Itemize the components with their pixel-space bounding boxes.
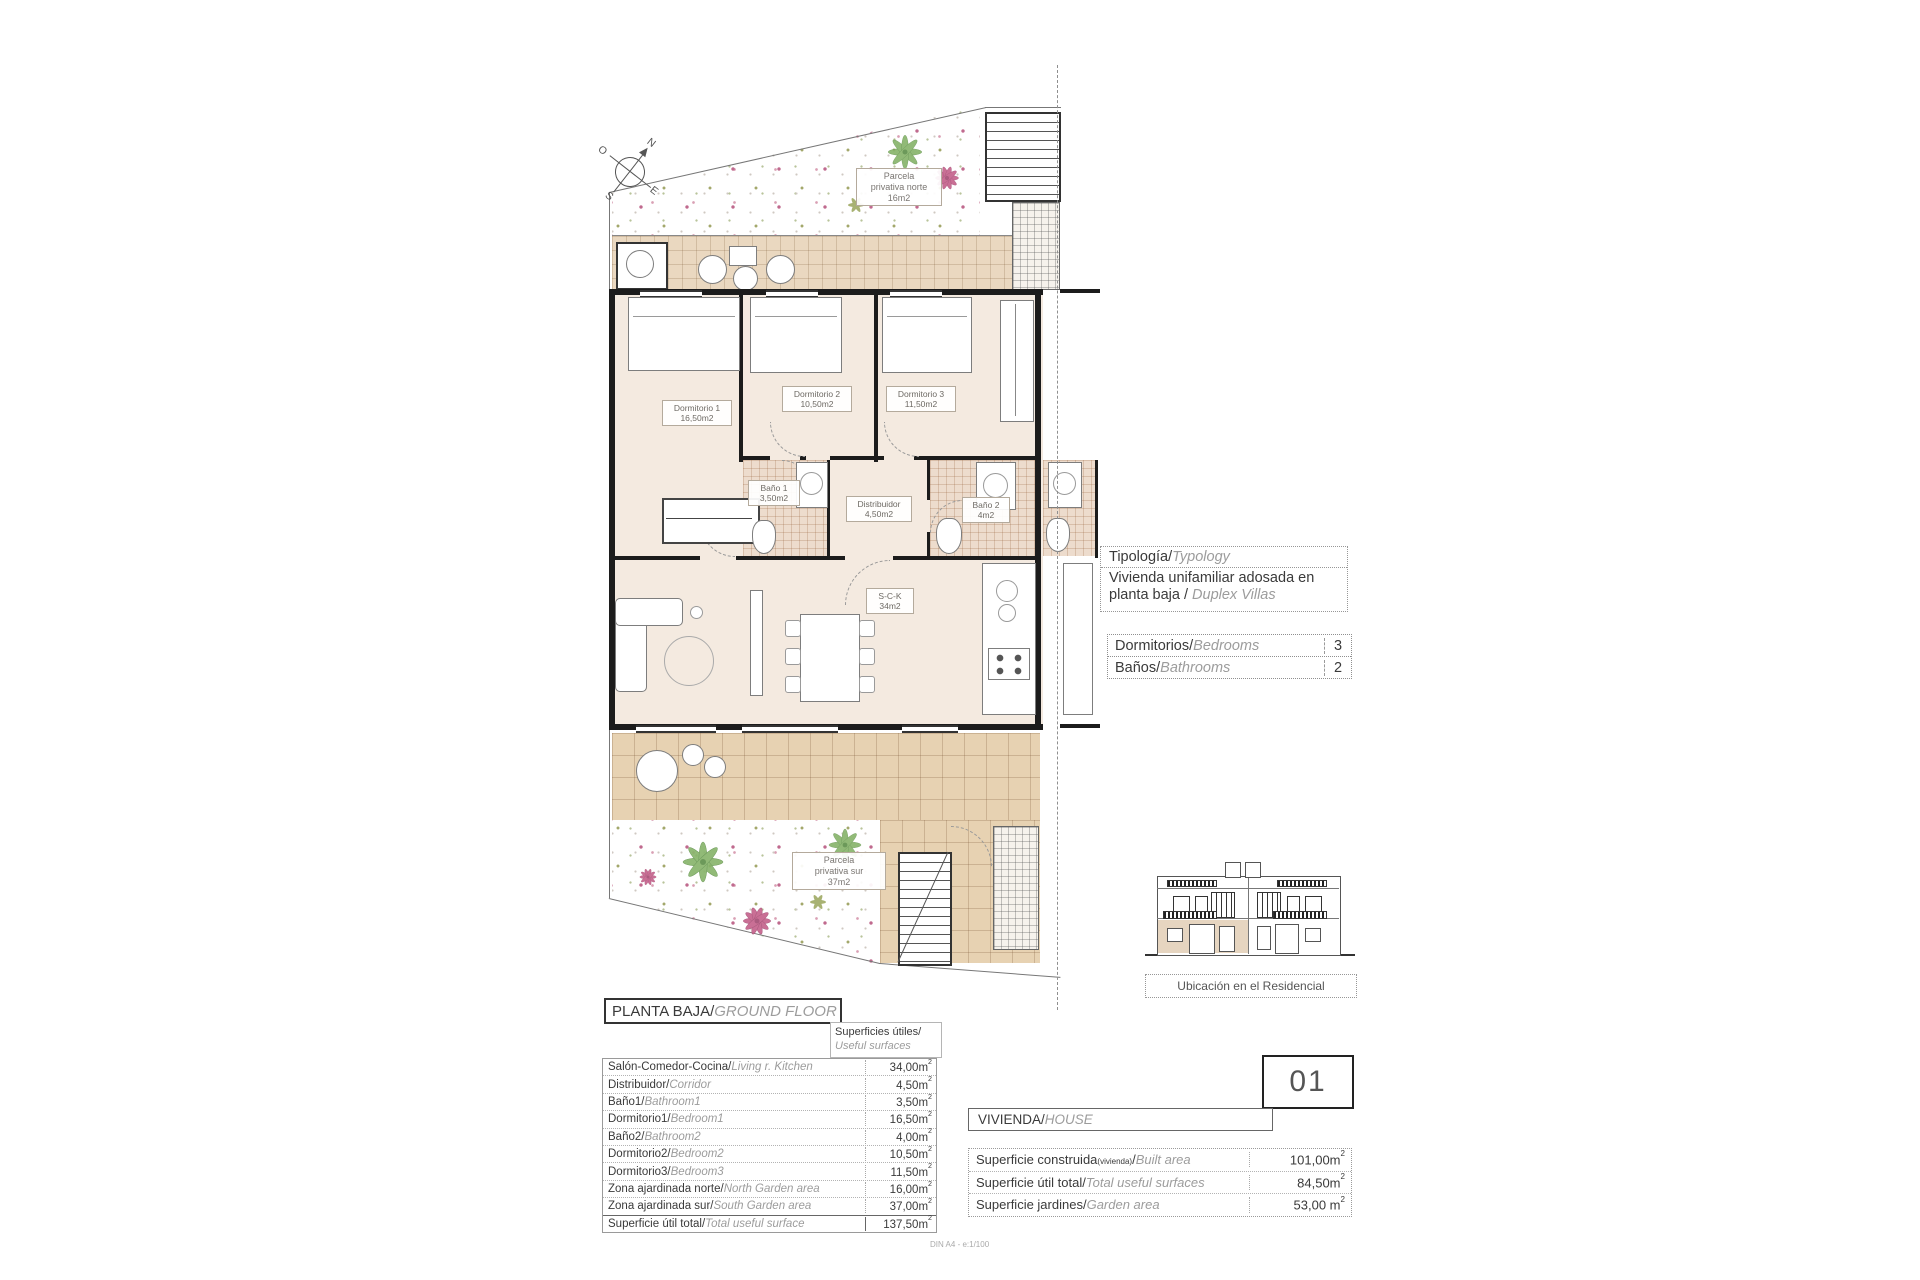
wall-mirror-top [1060, 289, 1100, 293]
house-surface-label-en: Garden area [1087, 1197, 1160, 1212]
staircase-north [985, 112, 1061, 202]
staircase-south [898, 852, 952, 966]
surface-label-es: Dormitorio1/ [608, 1113, 671, 1125]
door-gap-d3 [884, 456, 914, 460]
bed-2 [750, 297, 842, 373]
surface-label-en: North Garden area [724, 1183, 820, 1195]
chair-3 [785, 676, 801, 693]
surface-row: Dormitorio3/Bedroom3 11,50m2 [603, 1162, 936, 1179]
elevation-stair-tower-2 [1245, 862, 1261, 878]
house-label-en: HOUSE [1045, 1112, 1093, 1127]
floor-title-box: PLANTA BAJA/GROUND FLOOR [604, 998, 842, 1024]
house-surface-label-es: Superficie jardines [976, 1197, 1083, 1212]
parcela-line: 16m2 [860, 193, 938, 204]
garden-chair-1 [682, 744, 704, 766]
rug [664, 636, 714, 686]
typology-header: Tipología/Typology [1101, 547, 1347, 568]
label-dormitorio2: Dormitorio 2 10,50m2 [782, 386, 852, 412]
surface-row: Zona ajardinada sur/South Garden area 37… [603, 1197, 936, 1214]
surface-value: 10,50m2 [865, 1147, 936, 1161]
counts-label-en: Bathrooms [1160, 660, 1230, 676]
surface-row: Distribuidor/Corridor 4,50m2 [603, 1075, 936, 1092]
surface-label-en: Total useful surface [705, 1218, 804, 1230]
house-label-bar: VIVIENDA/HOUSE [968, 1108, 1273, 1131]
room-name: Dormitorio 3 [890, 389, 952, 399]
surface-label-en: Living r. Kitchen [731, 1061, 812, 1073]
surface-label-es: Baño1/ [608, 1096, 644, 1108]
surface-value: 37,00m2 [865, 1199, 936, 1213]
parcela-line: 37m2 [796, 877, 882, 888]
label-parcela-sur: Parcela privativa sur 37m2 [792, 852, 886, 890]
window-kitchen [902, 725, 958, 733]
room-area: 34m2 [870, 601, 910, 611]
terrace-table [729, 246, 757, 266]
room-area: 10,50m2 [786, 399, 848, 409]
label-dormitorio3: Dormitorio 3 11,50m2 [886, 386, 956, 412]
elevation-door-g2 [1219, 926, 1235, 952]
room-area: 3,50m2 [752, 493, 796, 503]
room-name: Distribuidor [850, 499, 908, 509]
room-area: 4,50m2 [850, 509, 908, 519]
mirror-counter [1063, 563, 1093, 715]
useful-surfaces-table: Salón-Comedor-Cocina/Living r. Kitchen 3… [602, 1058, 937, 1233]
surface-row: Salón-Comedor-Cocina/Living r. Kitchen 3… [603, 1059, 936, 1075]
garden-chair-2 [704, 756, 726, 778]
surface-label-en: Bedroom1 [671, 1113, 724, 1125]
surface-label-es: Salón-Comedor-Cocina/ [608, 1061, 731, 1073]
room-name: Baño 2 [966, 500, 1006, 510]
house-surface-value: 53,00 m2 [1249, 1197, 1351, 1212]
surface-label-en: Bathroom1 [644, 1096, 700, 1108]
house-surface-value: 101,00m2 [1249, 1152, 1351, 1167]
compass-o: O [596, 143, 610, 157]
counts-label-es: Dormitorios/ [1115, 638, 1193, 654]
sofa-l-horizontal [615, 598, 683, 626]
house-surface-row: Superficie jardines/Garden area 53,00 m2 [969, 1193, 1351, 1216]
room-name: Dormitorio 1 [666, 403, 728, 413]
bed-1 [628, 297, 740, 371]
wardrobe-d1 [662, 498, 760, 544]
elevation-caption: Ubicación en el Residencial [1177, 979, 1324, 993]
door-gap-b1 [806, 456, 830, 460]
house-surface-row: Superficie útil total/Total useful surfa… [969, 1171, 1351, 1194]
house-surface-label-note: (vivienda) [1097, 1157, 1132, 1166]
elevation-roof-panel-left [1167, 880, 1217, 887]
surface-row: Dormitorio1/Bedroom1 16,50m2 [603, 1110, 936, 1127]
elevation-stair-tower-1 [1225, 862, 1241, 878]
typology-box: Tipología/Typology Vivienda unifamiliar … [1100, 546, 1348, 612]
surface-label-en: Bedroom3 [671, 1166, 724, 1178]
elevation-door-g1 [1189, 924, 1215, 954]
house-surface-label-en: Built area [1136, 1152, 1191, 1167]
surface-label-en: Bedroom2 [671, 1148, 724, 1160]
south-garden [612, 820, 880, 965]
planter-pot [626, 250, 654, 278]
elevation-party-line [1248, 876, 1249, 954]
label-dormitorio1: Dormitorio 1 16,50m2 [662, 400, 732, 426]
closet-d3-rail [1015, 304, 1016, 416]
typology-title-es: Tipología/ [1109, 549, 1172, 565]
house-label-es: VIVIENDA/ [978, 1112, 1045, 1127]
useful-surfaces-caption-en: Useful surfaces [835, 1039, 937, 1053]
parcela-line: Parcela [860, 171, 938, 182]
surface-value: 4,00m2 [865, 1130, 936, 1144]
sink-bath1-bowl [800, 472, 823, 495]
surface-value: 3,50m2 [865, 1095, 936, 1109]
room-name: Baño 1 [752, 483, 796, 493]
terrace-chair-2 [733, 266, 758, 291]
terrace-chair-1 [698, 255, 727, 284]
surface-label-en: Bathroom2 [644, 1131, 700, 1143]
house-number: 01 [1289, 1065, 1326, 1099]
chair-1 [785, 620, 801, 637]
label-sck: S-C-K 34m2 [866, 588, 914, 614]
elevation-window-g1 [1167, 928, 1183, 942]
elevation-railing-right [1273, 911, 1327, 919]
bed-3 [882, 297, 972, 373]
chair-2 [785, 648, 801, 665]
counts-label-es: Baños/ [1115, 660, 1160, 676]
useful-surfaces-caption-es: Superficies útiles/ [835, 1025, 937, 1039]
label-distribuidor: Distribuidor 4,50m2 [846, 496, 912, 522]
house-surface-label-es: Superficie construida [976, 1152, 1097, 1167]
elevation-drawing [1145, 858, 1355, 958]
counts-row-bathrooms: Baños/Bathrooms 2 [1108, 656, 1351, 678]
elevation-window-g3 [1305, 928, 1321, 942]
surface-label-es: Distribuidor/ [608, 1079, 669, 1091]
utility-block [993, 826, 1039, 950]
surface-row: Baño1/Bathroom1 3,50m2 [603, 1093, 936, 1110]
surface-row: Dormitorio2/Bedroom2 10,50m2 [603, 1145, 936, 1162]
toilet-bath2 [936, 518, 962, 554]
surface-row-total: Superficie útil total/Total useful surfa… [603, 1215, 936, 1232]
counts-value: 2 [1324, 660, 1351, 676]
garden-table [636, 750, 678, 792]
room-name: Dormitorio 2 [786, 389, 848, 399]
surface-value: 137,50m2 [865, 1217, 936, 1231]
house-surface-row: Superficie construida(vivienda)/Built ar… [969, 1149, 1351, 1171]
surface-row: Zona ajardinada norte/North Garden area … [603, 1180, 936, 1197]
surface-label-en: South Garden area [713, 1200, 811, 1212]
elevation-window-g2 [1257, 926, 1271, 950]
useful-surfaces-caption-box: Superficies útiles/ Useful surfaces [830, 1022, 942, 1058]
chair-4 [859, 620, 875, 637]
north-terrace [612, 235, 1040, 293]
elevation-door-g3 [1275, 924, 1299, 954]
closet-d3 [1000, 300, 1034, 422]
room-area: 16,50m2 [666, 413, 728, 423]
label-parcela-norte: Parcela privativa norte 16m2 [856, 168, 942, 206]
typology-value: Vivienda unifamiliar adosada en planta b… [1101, 568, 1347, 606]
north-boundary-line-2 [985, 107, 1061, 108]
house-surface-label-en: Total useful surfaces [1086, 1175, 1205, 1190]
kitchen-hob [988, 648, 1030, 680]
label-bano2: Baño 2 4m2 [962, 497, 1010, 523]
counts-row-bedrooms: Dormitorios/Bedrooms 3 [1108, 635, 1351, 656]
surface-label-es: Zona ajardinada norte/ [608, 1183, 724, 1195]
dining-table [800, 614, 860, 702]
sink-bath2-bowl [983, 473, 1008, 498]
chair-6 [859, 676, 875, 693]
house-surface-label-es: Superficie útil total [976, 1175, 1082, 1190]
surface-value: 16,00m2 [865, 1182, 936, 1196]
mirror-toilet [1046, 518, 1070, 552]
floor-title-en: GROUND FLOOR [714, 1003, 837, 1020]
parcela-line: Parcela [796, 855, 882, 866]
floor-lamp [690, 606, 703, 619]
surface-label-es: Dormitorio2/ [608, 1148, 671, 1160]
typology-title-en: Typology [1172, 549, 1230, 565]
room-area: 11,50m2 [890, 399, 952, 409]
surface-label-es: Zona ajardinada sur/ [608, 1200, 713, 1212]
elevation-caption-box: Ubicación en el Residencial [1145, 974, 1357, 998]
parcela-line: privativa norte [860, 182, 938, 193]
kitchen-sink-2 [998, 604, 1016, 622]
wall-d2-d3 [874, 295, 878, 462]
boundary-dashed-line [1057, 65, 1058, 1010]
counts-label-en: Bedrooms [1193, 638, 1259, 654]
chair-5 [859, 648, 875, 665]
skylight-grid [1012, 202, 1060, 290]
surface-value: 4,50m2 [865, 1078, 936, 1092]
kitchen-sink-1 [996, 580, 1018, 602]
house-surfaces-table: Superficie construida(vivienda)/Built ar… [968, 1148, 1352, 1217]
counts-label: Baños/Bathrooms [1108, 660, 1324, 676]
surface-label-es: Dormitorio3/ [608, 1166, 671, 1178]
surface-row: Baño2/Bathroom2 4,00m2 [603, 1128, 936, 1145]
wardrobe-d1-rail [666, 518, 752, 519]
terrace-chair-3 [766, 255, 795, 284]
wall-mirror-right [1095, 460, 1098, 558]
sideboard [750, 590, 763, 696]
typology-value-en: Duplex Villas [1192, 587, 1276, 603]
room-area: 4m2 [966, 510, 1006, 520]
label-bano1: Baño 1 3,50m2 [748, 480, 800, 506]
house-number-box: 01 [1262, 1055, 1354, 1109]
toilet-bath1 [752, 520, 776, 554]
surface-value: 34,00m2 [865, 1060, 936, 1074]
parcela-line: privativa sur [796, 866, 882, 877]
elevation-railing-left [1163, 911, 1217, 919]
window-living-2 [742, 725, 838, 733]
scale-note: DIN A4 - e:1/100 [930, 1240, 989, 1249]
surface-label-en: Corridor [669, 1079, 711, 1091]
counts-value: 3 [1324, 638, 1351, 654]
counts-label: Dormitorios/Bedrooms [1108, 638, 1324, 654]
surface-label-es: Superficie útil total/ [608, 1218, 705, 1230]
room-name: S-C-K [870, 591, 910, 601]
surface-value: 11,50m2 [865, 1165, 936, 1179]
surface-label-es: Baño2/ [608, 1131, 644, 1143]
plan-sheet: Dormitorio 1 16,50m2 Dormitorio 2 10,50m… [0, 0, 1920, 1280]
elevation-roof-panel-right [1277, 880, 1327, 887]
window-living-1 [636, 725, 716, 733]
house-surface-value: 84,50m2 [1249, 1175, 1351, 1190]
wall-mirror-bottom [1060, 724, 1100, 728]
surface-value: 16,50m2 [865, 1112, 936, 1126]
counts-table: Dormitorios/Bedrooms 3 Baños/Bathrooms 2 [1107, 634, 1352, 679]
wall-living-top [609, 556, 1039, 560]
floor-title-es: PLANTA BAJA/ [612, 1003, 714, 1020]
